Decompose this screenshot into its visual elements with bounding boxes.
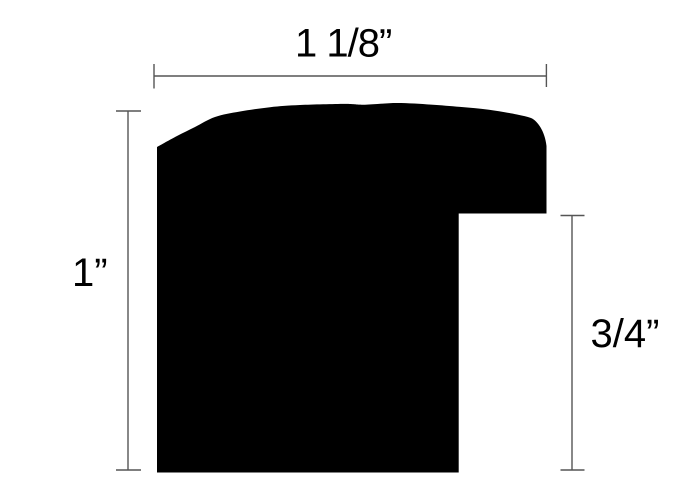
svg-text:1”: 1” xyxy=(72,251,108,295)
svg-text:3/4”: 3/4” xyxy=(591,312,660,356)
svg-text:1 1/8”: 1 1/8” xyxy=(295,22,391,66)
